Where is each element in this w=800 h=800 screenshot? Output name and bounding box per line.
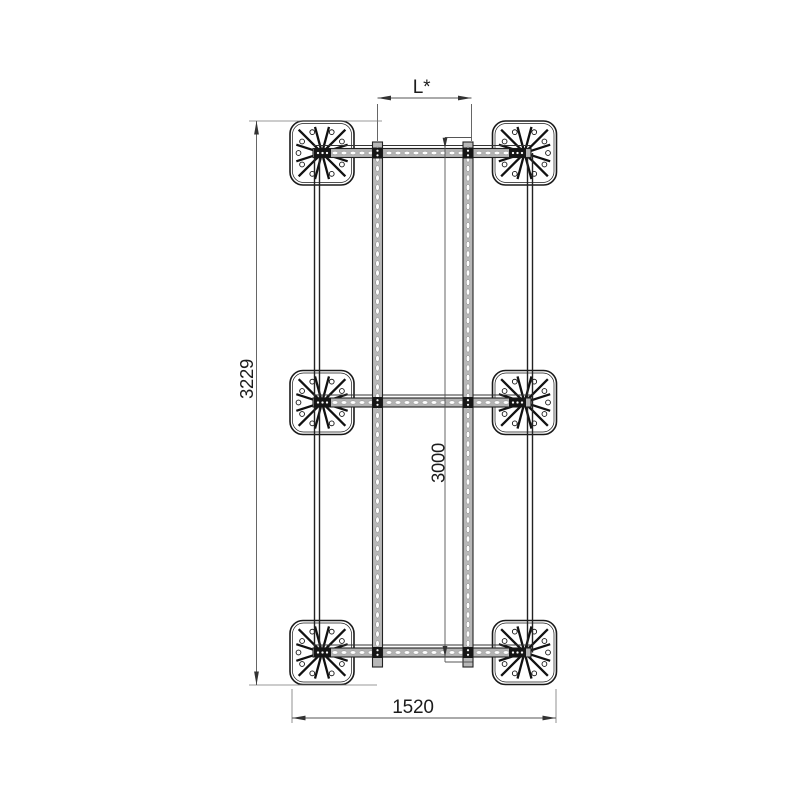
channel-slot — [376, 498, 380, 504]
channel-slot — [466, 165, 470, 171]
bolt-hole — [532, 130, 537, 135]
connector-bolt-dot — [467, 154, 469, 156]
channel-slot — [376, 450, 380, 456]
bolt-hole — [542, 139, 547, 144]
channel-slot — [376, 289, 380, 295]
bolt-hole — [542, 662, 547, 667]
channel-slot — [376, 327, 380, 333]
rail-slot — [386, 651, 392, 654]
hub-bolt-dot — [326, 651, 328, 653]
bolt-hole — [300, 662, 305, 667]
bolt-hole — [512, 130, 517, 135]
bolt-hole — [512, 379, 517, 384]
bolt-hole — [340, 389, 345, 394]
rail-slot — [503, 151, 509, 154]
channel-rail-connector — [373, 647, 383, 658]
channel-slot — [466, 365, 470, 371]
technical-drawing-canvas: L* 3229 3000 1520 — [0, 0, 800, 800]
hub-bolt-dot — [516, 152, 518, 154]
bolt-hole — [329, 629, 334, 634]
bolt-hole — [340, 662, 345, 667]
rail-slot — [350, 651, 356, 654]
channel-slot — [466, 203, 470, 209]
bolt-hole — [546, 400, 551, 405]
rail-slot — [404, 151, 410, 154]
channel-slot — [466, 346, 470, 352]
rail-slot — [404, 651, 410, 654]
connector-bolt-dot — [467, 150, 469, 152]
frame-top-view-drawing: L* 3229 3000 1520 — [0, 0, 800, 800]
rail-slot — [422, 401, 428, 404]
channel-slot — [466, 602, 470, 608]
channel-slot — [466, 507, 470, 513]
channel-slot — [376, 488, 380, 494]
channel-slot — [466, 526, 470, 532]
rail-slot — [359, 151, 365, 154]
channel-slot — [376, 545, 380, 551]
arrowhead-left — [378, 96, 392, 101]
channel-slot — [466, 536, 470, 542]
bolt-hole — [546, 650, 551, 655]
bolt-hole — [502, 412, 507, 417]
rail-slot — [395, 651, 401, 654]
hub-bolt-dot — [326, 401, 328, 403]
channel-slot — [376, 355, 380, 361]
hub-bolt-dot — [521, 651, 523, 653]
rail-slot — [332, 401, 338, 404]
channel-slot — [376, 194, 380, 200]
rail-slot — [404, 401, 410, 404]
bolt-hole — [340, 639, 345, 644]
hub-bolt-dot — [512, 651, 514, 653]
hub-bolt-dot — [512, 152, 514, 154]
bolt-hole — [340, 139, 345, 144]
channel-slot — [376, 222, 380, 228]
channel-slot — [376, 583, 380, 589]
bolt-hole — [502, 662, 507, 667]
channel-slot — [376, 602, 380, 608]
rail-slot — [395, 401, 401, 404]
bolt-hole — [329, 671, 334, 676]
bolt-hole — [300, 162, 305, 167]
bolt-hole — [512, 421, 517, 426]
channel-rail-connector — [463, 397, 473, 408]
channel-slot — [376, 479, 380, 485]
channel-slot — [466, 631, 470, 637]
rail-slot — [494, 651, 500, 654]
channel-slot — [376, 279, 380, 285]
channel-slot — [466, 422, 470, 428]
arrowhead-down — [254, 672, 259, 686]
channel-slot — [466, 194, 470, 200]
channel-slot — [376, 564, 380, 570]
bolt-hole — [502, 139, 507, 144]
connector-bolt-dot — [376, 649, 378, 651]
rail-slot — [341, 401, 347, 404]
rail-slot — [503, 651, 509, 654]
channel-slot — [376, 241, 380, 247]
bolt-hole — [296, 400, 301, 405]
channel-slot — [466, 564, 470, 570]
rail-slot — [476, 401, 482, 404]
channel-slot — [376, 621, 380, 627]
connector-bolt-dot — [467, 649, 469, 651]
bolt-hole — [340, 162, 345, 167]
channel-slot — [466, 298, 470, 304]
bolt-hole — [300, 412, 305, 417]
rail-slot — [476, 651, 482, 654]
channel-rail-connector — [463, 647, 473, 658]
channel-slot — [376, 365, 380, 371]
bolt-hole — [546, 151, 551, 156]
channel-slot — [466, 222, 470, 228]
channel-slot — [376, 640, 380, 646]
channel-slot — [376, 346, 380, 352]
connector-bolt-dot — [376, 399, 378, 401]
channel-slot — [466, 583, 470, 589]
dim-label-total-height: 3229 — [236, 359, 257, 399]
bolt-hole — [542, 389, 547, 394]
channel-slot — [466, 270, 470, 276]
channel-slot — [466, 317, 470, 323]
channel-slot — [466, 441, 470, 447]
channel-slot — [376, 213, 380, 219]
channel-slot — [376, 317, 380, 323]
channel-rail-connector — [373, 148, 383, 159]
channel-slot — [376, 203, 380, 209]
bolt-hole — [512, 171, 517, 176]
channel-slot — [376, 412, 380, 418]
channel-slot — [376, 232, 380, 238]
channel-slot — [376, 612, 380, 618]
horizontal-rails — [313, 146, 531, 658]
rail-slot — [395, 151, 401, 154]
bolt-hole — [512, 629, 517, 634]
channel-slot — [466, 517, 470, 523]
channel-slot — [376, 574, 380, 580]
arrowhead-left — [292, 716, 306, 721]
channel-slot — [376, 374, 380, 380]
bolt-hole — [300, 639, 305, 644]
channel-slot — [466, 355, 470, 361]
channel-slot — [376, 298, 380, 304]
channel-slot — [466, 412, 470, 418]
rail-slot — [413, 401, 419, 404]
channel-slot — [376, 631, 380, 637]
channel-slot — [466, 574, 470, 580]
arrowhead-right — [543, 716, 557, 721]
hub-bolt-dot — [321, 401, 323, 403]
channel-slot — [376, 536, 380, 542]
connector-bolt-dot — [376, 150, 378, 152]
hub-bolt-dot — [317, 152, 319, 154]
bolt-hole — [329, 421, 334, 426]
rail-slot — [485, 651, 491, 654]
rail-slot — [485, 401, 491, 404]
channel-slot — [466, 450, 470, 456]
channel-slot — [376, 431, 380, 437]
rail-slot — [413, 151, 419, 154]
channel-slot — [466, 279, 470, 285]
channel-slot — [376, 270, 380, 276]
channel-slot — [466, 308, 470, 314]
channel-slot — [376, 517, 380, 523]
bolt-hole — [310, 671, 315, 676]
bolt-hole — [329, 130, 334, 135]
hub-bolt-dot — [326, 152, 328, 154]
rail-slot — [359, 651, 365, 654]
arrowhead-down — [443, 138, 448, 149]
channel-slot — [466, 555, 470, 561]
channel-slot — [376, 441, 380, 447]
channel-slot — [376, 507, 380, 513]
rail-slot — [503, 401, 509, 404]
rail-slot — [422, 151, 428, 154]
bolt-hole — [340, 412, 345, 417]
channel-slot — [466, 232, 470, 238]
channel-slot — [376, 555, 380, 561]
channel-slot — [466, 384, 470, 390]
channel-slot — [466, 175, 470, 181]
channel-slot — [376, 260, 380, 266]
rail-slot — [359, 401, 365, 404]
rail-slot — [494, 401, 500, 404]
channel-slot — [466, 545, 470, 551]
bolt-hole — [542, 412, 547, 417]
bolt-hole — [502, 639, 507, 644]
channel-slot — [376, 526, 380, 532]
dim-label-module-spacing: L* — [413, 77, 431, 98]
channel-slot — [376, 308, 380, 314]
channel-slot — [466, 260, 470, 266]
hub-bolt-dot — [317, 401, 319, 403]
rail-slot — [350, 401, 356, 404]
channel-slot — [466, 241, 470, 247]
channel-slot — [466, 184, 470, 190]
channel-slot — [466, 213, 470, 219]
bolt-hole — [532, 671, 537, 676]
bolt-hole — [300, 139, 305, 144]
bolt-hole — [542, 162, 547, 167]
channel-slot — [466, 621, 470, 627]
channel-rail-connector — [463, 148, 473, 159]
rail-slot — [494, 151, 500, 154]
channel-slot — [376, 384, 380, 390]
bolt-hole — [542, 639, 547, 644]
rail-slot — [449, 151, 455, 154]
hub-bolt-dot — [516, 651, 518, 653]
channel-slot — [376, 460, 380, 466]
rail-slot — [449, 651, 455, 654]
bolt-hole — [296, 650, 301, 655]
channel-slot — [376, 165, 380, 171]
dim-label-rail-length: 3000 — [428, 443, 449, 483]
channel-slot — [376, 422, 380, 428]
hub-bolt-dot — [321, 152, 323, 154]
hub-bolt-dot — [512, 401, 514, 403]
connector-bolt-dot — [376, 154, 378, 156]
channel-slot — [376, 469, 380, 475]
channel-slot — [376, 251, 380, 257]
rail-slot — [332, 651, 338, 654]
rail-slot — [386, 151, 392, 154]
rail-slot — [422, 651, 428, 654]
bolt-hole — [329, 171, 334, 176]
hub-bolt-dot — [317, 651, 319, 653]
bolt-hole — [296, 151, 301, 156]
channel-slot — [376, 593, 380, 599]
channel-slot — [466, 336, 470, 342]
connector-bolt-dot — [467, 654, 469, 656]
channel-slot — [466, 251, 470, 257]
channel-slot — [466, 431, 470, 437]
bolt-hole — [329, 379, 334, 384]
channel-slot — [466, 640, 470, 646]
connector-bolt-dot — [376, 654, 378, 656]
bolt-hole — [512, 671, 517, 676]
channel-slot — [466, 460, 470, 466]
channel-slot — [466, 289, 470, 295]
rail-slot — [449, 401, 455, 404]
connector-bolt-dot — [467, 399, 469, 401]
channel-slot — [466, 327, 470, 333]
rail-slot — [476, 151, 482, 154]
channel-slot — [376, 184, 380, 190]
rail-slot — [413, 651, 419, 654]
rail-slot — [332, 151, 338, 154]
dim-label-base-width: 1520 — [392, 697, 433, 718]
bolt-hole — [310, 130, 315, 135]
rail-slot — [431, 151, 437, 154]
bolt-hole — [502, 389, 507, 394]
rail-slot — [431, 651, 437, 654]
hub-bolt-dot — [521, 152, 523, 154]
channel-slot — [466, 498, 470, 504]
channel-slot — [466, 488, 470, 494]
rail-slot — [431, 401, 437, 404]
rail-slot — [350, 151, 356, 154]
connector-bolt-dot — [467, 404, 469, 406]
rail-slot — [341, 151, 347, 154]
channel-slot — [466, 479, 470, 485]
bolt-hole — [300, 389, 305, 394]
rail-slot — [485, 151, 491, 154]
hub-bolt-dot — [321, 651, 323, 653]
channel-slot — [466, 593, 470, 599]
arrowhead-right — [458, 96, 472, 101]
dimension-module-spacing — [378, 96, 472, 141]
channel-slot — [466, 469, 470, 475]
hub-bolt-dot — [521, 401, 523, 403]
channel-slot — [376, 336, 380, 342]
channel-slot — [466, 374, 470, 380]
rail-slot — [386, 401, 392, 404]
arrowhead-up — [254, 121, 259, 135]
channel-slot — [466, 612, 470, 618]
rail-slot — [341, 651, 347, 654]
channel-rail-connector — [373, 397, 383, 408]
connector-bolt-dot — [376, 404, 378, 406]
bolt-hole — [502, 162, 507, 167]
hub-bolt-dot — [516, 401, 518, 403]
channel-slot — [376, 175, 380, 181]
